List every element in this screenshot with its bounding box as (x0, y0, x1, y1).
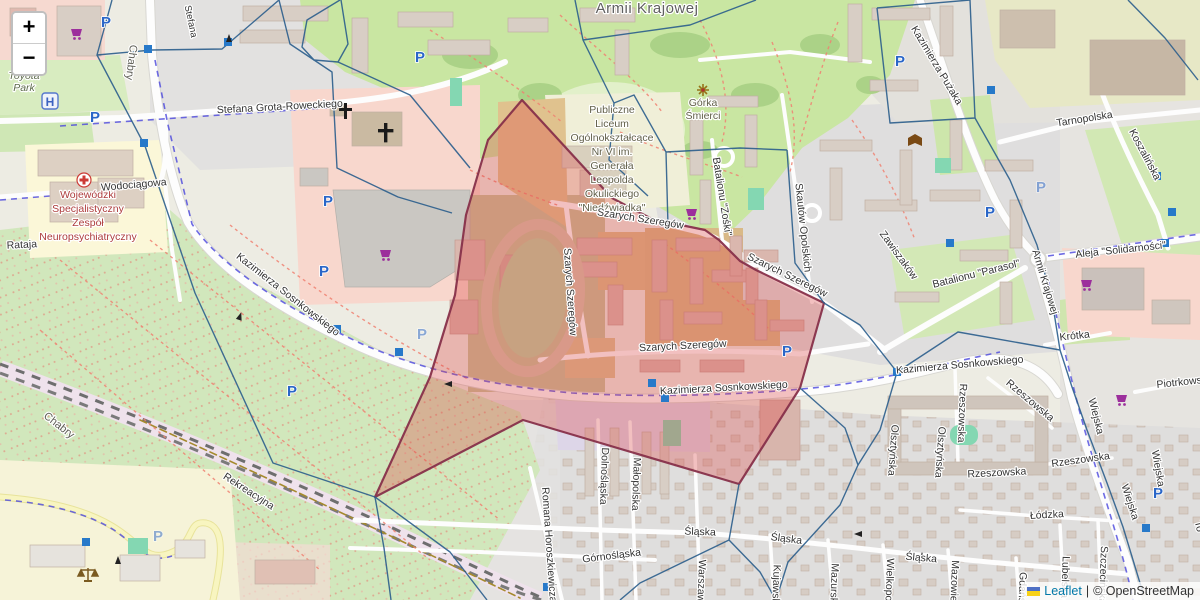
svg-text:P: P (101, 14, 111, 31)
svg-text:P: P (782, 343, 792, 360)
attribution-bar: Leaflet | © OpenStreetMap (1021, 582, 1200, 600)
svg-text:Górka: Górka (689, 97, 718, 109)
svg-text:Specjalistyczny: Specjalistyczny (52, 203, 125, 215)
svg-text:P: P (417, 326, 427, 343)
svg-text:P: P (287, 383, 297, 400)
svg-text:P: P (90, 109, 100, 126)
ukraine-flag-icon (1027, 587, 1040, 596)
hospital-cross-icon (77, 173, 91, 187)
svg-text:Okulickiego: Okulickiego (585, 188, 639, 200)
street-label: Małopolska (629, 457, 643, 511)
svg-text:Śmierci: Śmierci (685, 109, 720, 122)
leaflet-link[interactable]: Leaflet (1044, 584, 1082, 598)
svg-text:P: P (415, 49, 425, 66)
svg-text:Nr VI im.: Nr VI im. (592, 146, 633, 158)
street-label: Kujawska (769, 564, 783, 600)
svg-text:P: P (895, 53, 905, 70)
peak-label: Górka Śmierci (685, 97, 720, 122)
map-tiles: P P P P P P P P P P P P P (0, 0, 1200, 600)
street-label: Śląska (684, 524, 716, 538)
street-label: Rataja (6, 238, 37, 252)
street-label: Śląska (905, 550, 938, 566)
svg-text:Zespół: Zespół (72, 217, 104, 229)
svg-text:Generała: Generała (590, 160, 633, 172)
osm-attribution[interactable]: © OpenStreetMap (1093, 584, 1194, 598)
street-label: Łódzka (1030, 508, 1065, 522)
street-label: Wielkopolska (882, 558, 896, 600)
zoom-out-button[interactable]: − (13, 44, 45, 74)
street-label: Mazowiecka (947, 560, 961, 600)
svg-text:H: H (46, 95, 55, 109)
district-label: Armii Krajowej (596, 0, 699, 17)
svg-text:Leopolda: Leopolda (590, 174, 633, 186)
svg-text:P: P (323, 193, 333, 210)
svg-text:P: P (153, 528, 163, 545)
street-label: Dolnośląska (597, 447, 611, 505)
svg-text:Neuropsychiatryczny: Neuropsychiatryczny (39, 231, 137, 243)
street-label: Mazurska (827, 563, 841, 600)
leaflet-map[interactable]: P P P P P P P P P P P P P (0, 0, 1200, 600)
street-label: Warszawska (694, 559, 708, 600)
svg-text:P: P (1036, 179, 1046, 196)
svg-text:P: P (319, 263, 329, 280)
zoom-in-button[interactable]: + (13, 13, 45, 44)
attribution-separator: | (1086, 584, 1089, 598)
svg-text:Ogólnokształcące: Ogólnokształcące (571, 132, 654, 144)
svg-text:P: P (985, 204, 995, 221)
zoom-control: + − (11, 11, 47, 76)
svg-text:Liceum: Liceum (595, 118, 629, 130)
street-label: Rzeszowska (955, 383, 969, 442)
svg-text:P: P (1153, 485, 1163, 502)
helipad-icon: H (42, 93, 58, 109)
poi-label: Park (13, 82, 35, 94)
svg-text:Publiczne: Publiczne (589, 104, 635, 116)
